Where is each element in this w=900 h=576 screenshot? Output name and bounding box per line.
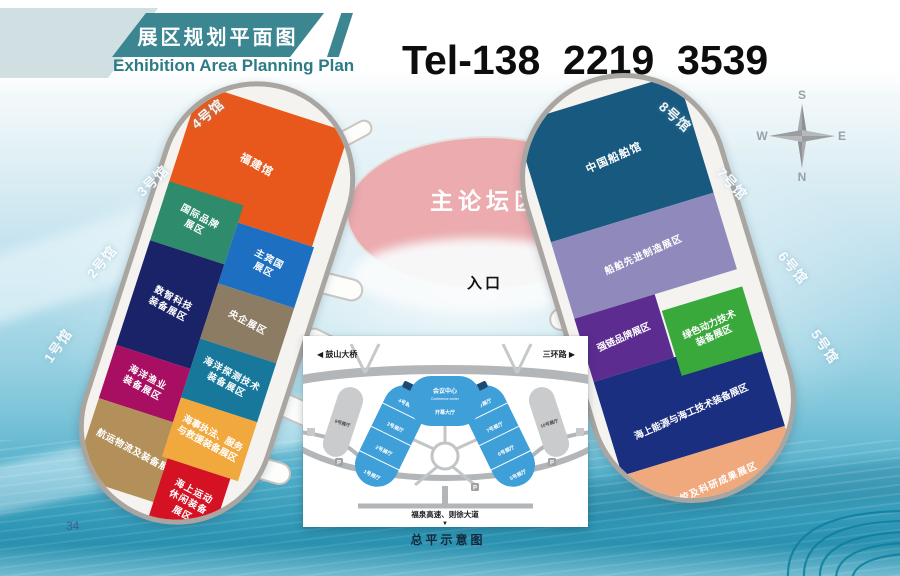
zone-label: 中国船舶馆 [584,139,645,176]
zone-label: 主宾国展区 [244,246,287,285]
zone-label: 福建馆 [237,151,275,181]
compass-left-letter: W [756,129,768,143]
zone-label: 海上运动休闲装备展区 [159,477,217,531]
zone-label: 数智科技装备展区 [144,283,196,326]
zone-label: 央企展区 [226,308,269,339]
compass-icon: S N W E [755,86,849,182]
compass-right-letter: E [838,129,846,143]
zone-label: 海上能源与海工技术装备展区 [633,382,751,444]
inset-road-fuquan-expressway: 福泉高速、则徐大道 [410,509,479,519]
inset-road-third-ring: 三环路 ▶ [543,349,576,359]
entrance-label: 入口 [430,272,540,293]
parking-icon: P [550,461,554,467]
site-map-graphic: 9号展厅 10号展厅 4号展厅 3号展厅 2号展厅 1号展厅 [303,336,588,527]
page-title-english: Exhibition Area Planning Plan [113,56,413,76]
parking-icon: P [473,486,477,492]
page-number: 34 [66,519,79,533]
inset-conference-center-zh: 会议中心 [433,387,457,395]
inset-conference-center-en: Conference center [431,397,460,401]
zone-label: 海洋渔业装备展区 [118,362,170,405]
inset-opening-hall: 开幕大厅 [435,409,455,416]
inset-map-caption: 总平示意图 [318,531,578,548]
site-overview-map: 9号展厅 10号展厅 4号展厅 3号展厅 2号展厅 1号展厅 [303,336,588,527]
zone-label: 船舶先进制造展区 [603,233,685,278]
zone-label: 绿色动力技术装备展区 [678,307,747,356]
parking-icon: P [337,461,341,467]
compass-top-letter: S [798,88,806,102]
zone-label: 海事执法、服务与救援装备展区 [172,412,247,468]
zone-label: 强链品牌展区 [594,320,654,356]
inset-road-arrow: ▼ [442,521,448,527]
inset-road-gushan-bridge: ◀ 鼓山大桥 [317,349,358,359]
zone-label: 海洋探测技术装备展区 [194,354,264,407]
compass-bottom-letter: N [798,170,807,182]
zone-label: 国际品牌展区 [171,201,223,244]
page-title: 展区规划平面图 [138,21,299,50]
phone-number: Tel-138 2219 3539 [402,37,768,84]
header-title-banner: 展区规划平面图 [112,13,324,57]
exhibition-plan-page: 展区规划平面图 Exhibition Area Planning Plan Te… [0,0,900,576]
